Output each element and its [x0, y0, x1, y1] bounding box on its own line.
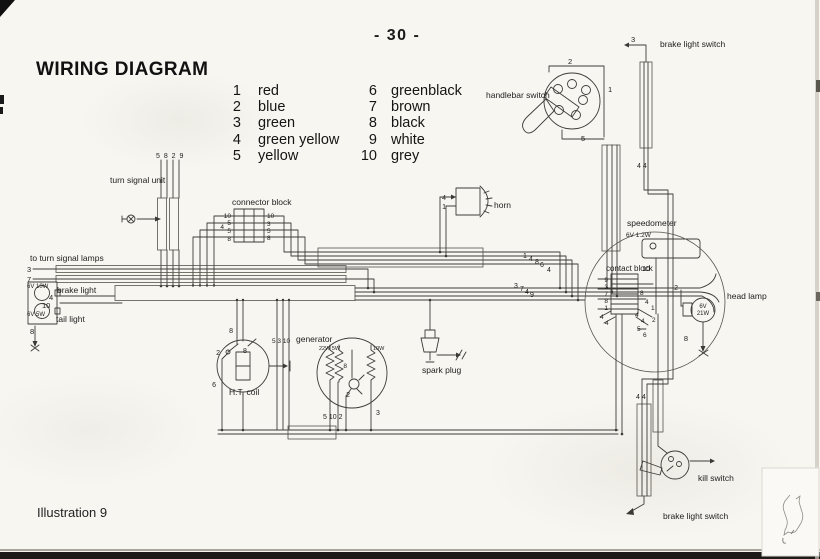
speedometer-rating: 6V 1.2W [626, 232, 652, 239]
main-harness [236, 274, 719, 430]
wire-number-label: 5 [581, 134, 585, 143]
wire-number-label: 7 [27, 275, 31, 284]
cable-sleeves [56, 266, 375, 301]
wire-number-label: 5 [637, 326, 641, 333]
wire-number-label: 8 [30, 327, 34, 336]
wire-number-label: 10 [42, 301, 50, 310]
handlebar-switch-label: handlebar switch [486, 90, 550, 100]
kill-switch-label: kill switch [698, 473, 734, 483]
wire-number-label: 6 [643, 332, 647, 339]
brake-light-switch-bottom-symbol [626, 375, 673, 515]
wire-number-label: 8 [640, 290, 644, 297]
head-lamp-bulb [691, 298, 715, 322]
wire-number-label: 3 [376, 410, 380, 417]
wire-number-label: 5 [267, 228, 271, 235]
wire-number-label: 4 [635, 312, 639, 319]
head-lamp-bulb-rating-line2: 21W [697, 311, 710, 317]
wire-number-label: 7 [604, 291, 608, 298]
wire-number-label: 4 [605, 320, 609, 327]
tail-light-rating: 6V 5W [27, 312, 45, 318]
wire-number-label: 1 [608, 85, 612, 94]
wire-number-label: 10 [224, 213, 232, 220]
horn-label: horn [494, 200, 511, 210]
indicator-lamp-icon [122, 215, 161, 223]
scanned-manual-page: - 30 - WIRING DIAGRAM 1red2blue3green4gr… [0, 0, 820, 559]
spark-plug-symbol [421, 299, 466, 362]
wire-number-label: 2 [568, 57, 572, 66]
ht-coil-symbol [217, 339, 290, 392]
speedometer-label: speedometer [627, 218, 677, 228]
wire-number-label: 5 10 2 [323, 414, 343, 421]
wire-number-label: 8 [604, 298, 608, 305]
wire-number-label: 2 [346, 392, 350, 399]
wire-number-label: 1 [523, 253, 527, 260]
wire-number-label: 4 4 [636, 394, 646, 401]
wire-number-label: 6 [540, 262, 544, 269]
wire-number-label: 7 [520, 286, 524, 293]
wire-number-label: 3 [514, 283, 518, 290]
wire-number-label: 4 [600, 314, 604, 321]
wire-number-label: 4 [529, 256, 533, 263]
wire-number-label: 8 [535, 259, 539, 266]
corner-sketch [762, 468, 819, 556]
tail-light-label: tail light [56, 314, 85, 324]
wire-number-label: 2 [216, 350, 220, 357]
wire-number-label: 3 [267, 221, 271, 228]
wire-number-label: 5 [227, 220, 231, 227]
generator-coil-left-rating: 22W 5W [319, 346, 341, 352]
wire-number-label: 2 [674, 285, 678, 292]
generator-label: generator [296, 334, 333, 344]
brake-tail-light-symbol [28, 269, 122, 351]
wire-number-label: 3 [631, 35, 635, 44]
wire-number-label: 5 8 2 9 [156, 153, 184, 160]
wire-number-label: 9 [604, 277, 608, 284]
scan-edge-artifacts [0, 0, 820, 559]
brake-light-label: brake light [57, 285, 97, 295]
wire-number-label: 4 [525, 289, 529, 296]
wire-number-label: 8 [343, 363, 347, 370]
wire-number-label: 4 [220, 224, 224, 231]
wire-number-label: 8 [227, 236, 231, 243]
wire-number-label: 10 [267, 213, 275, 220]
wiring-diagram-svg: turn signal unitconnector blockto turn s… [0, 0, 820, 559]
brake-light-switch-top-symbol [624, 43, 673, 376]
head-lamp-label: head lamp [727, 291, 767, 301]
wire-number-label: 2 [652, 317, 656, 324]
connector-block-label: connector block [232, 197, 292, 207]
wire-number-label: 3 [27, 265, 31, 274]
wire-number-label: 8 [684, 334, 688, 343]
wire-number-label: 1 [604, 305, 608, 312]
wire-number-label: 4 4 [637, 163, 647, 170]
brake-light-switch-bottom-label: brake light switch [663, 511, 728, 521]
wire-number-label: 9 [530, 292, 534, 299]
generator-coil-right-rating: 10W [373, 346, 385, 352]
wire-number-label: 8 [243, 348, 247, 355]
horn-symbol [439, 186, 492, 257]
head-lamp-bulb-rating-line1: 6V [699, 304, 706, 310]
ht-coil-label: H.T. coil [229, 387, 259, 397]
wire-number-label: 8 [229, 328, 233, 335]
wire-number-label: 10 [642, 266, 650, 273]
brake-light-switch-top-label: brake light switch [660, 39, 725, 49]
spark-plug-label: spark plug [422, 365, 461, 375]
wire-number-label: 6 [212, 382, 216, 389]
to-turn-signal-lamps-label: to turn signal lamps [30, 253, 104, 263]
wire-number-label: 5 3 10 [272, 338, 290, 345]
wire-number-label: 4 [442, 195, 446, 202]
wire-number-label: 1 [442, 204, 446, 211]
wire-number-label: 4 [547, 267, 551, 274]
wire-number-label: 3 [604, 284, 608, 291]
wire-number-label: 4 [645, 299, 649, 306]
wire-number-label: 1 [651, 305, 655, 312]
wire-number-label: 5 [227, 228, 231, 235]
brake-light-rating: 6V 10W [27, 284, 49, 290]
wire-number-label: 4 [641, 318, 645, 325]
wire-number-label: 8 [267, 235, 271, 242]
turn-signal-unit-label: turn signal unit [110, 175, 166, 185]
